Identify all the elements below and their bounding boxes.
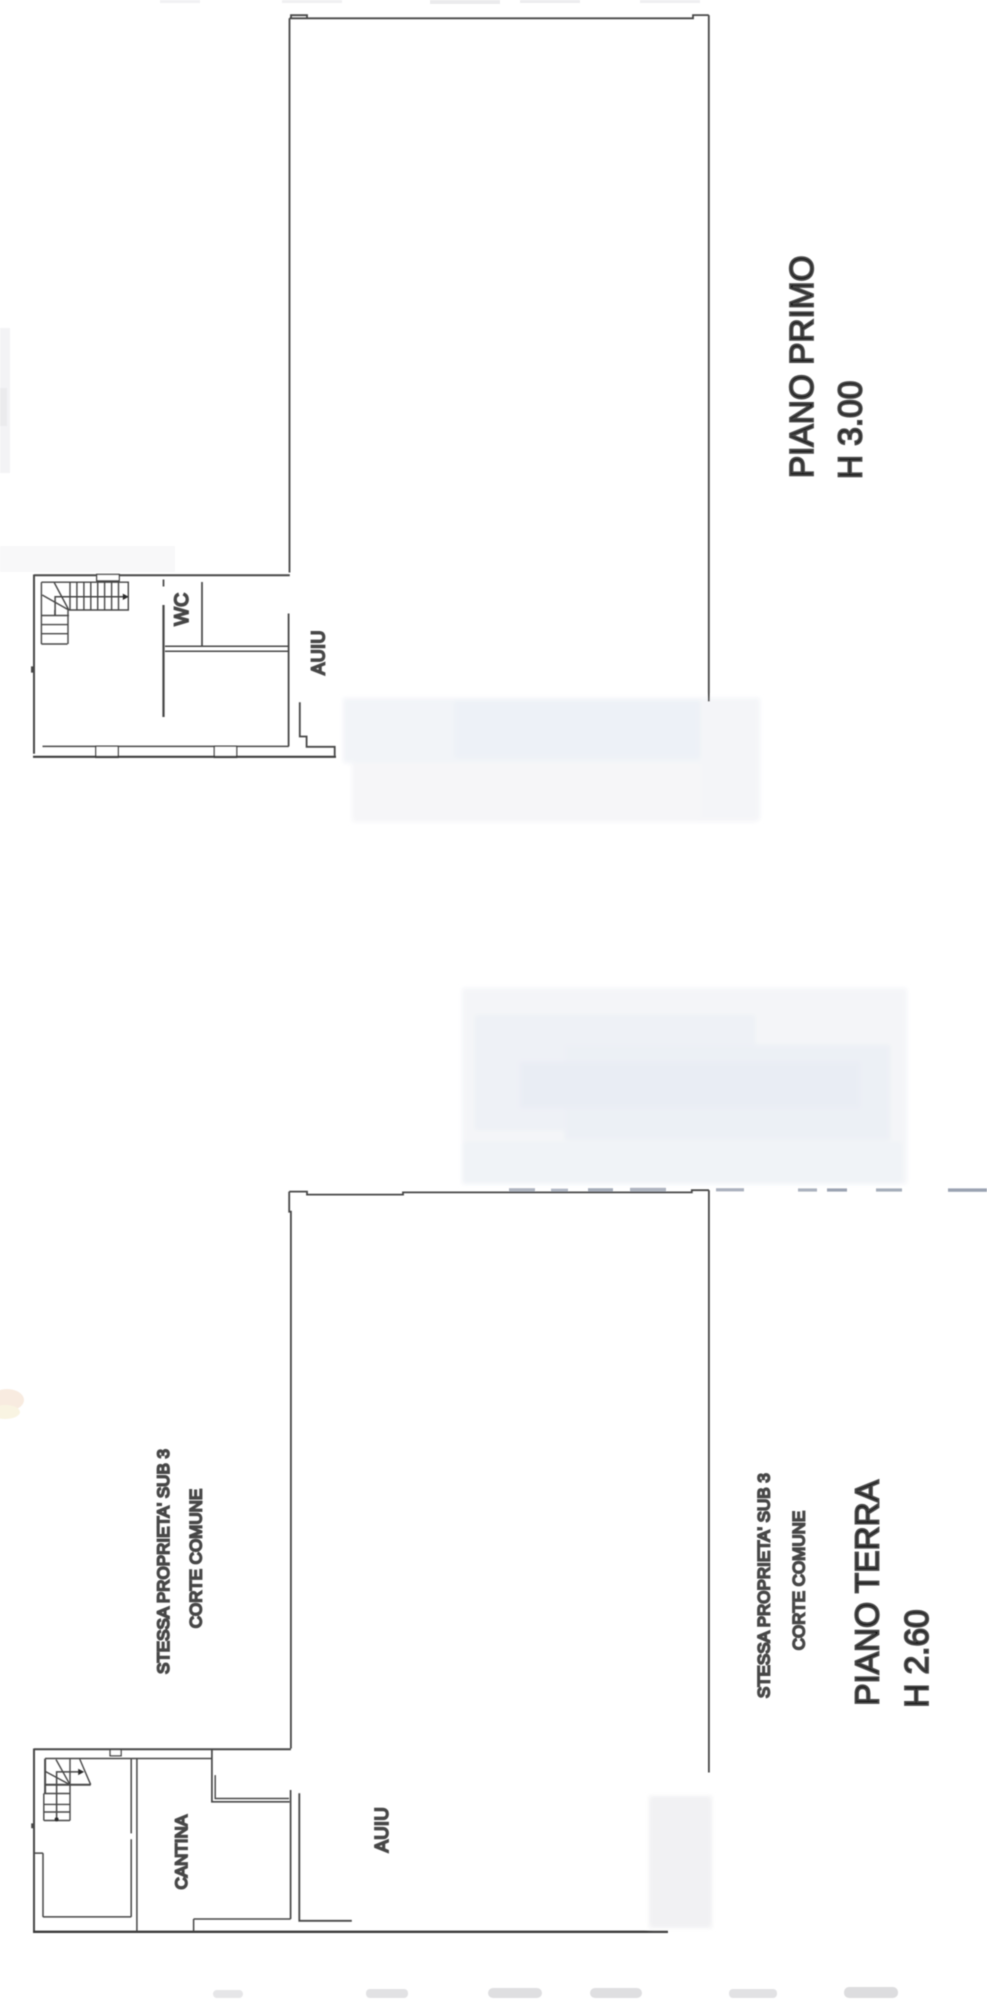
svg-text:CORTE COMUNE: CORTE COMUNE [790, 1511, 809, 1650]
svg-text:STESSA PROPRIETA' SUB 3: STESSA PROPRIETA' SUB 3 [754, 1473, 773, 1698]
svg-text:CORTE COMUNE: CORTE COMUNE [187, 1489, 206, 1628]
svg-text:CANTINA: CANTINA [172, 1814, 191, 1889]
svg-text:AUIU: AUIU [309, 630, 329, 675]
svg-text:H 3.00: H 3.00 [833, 381, 870, 479]
svg-text:STESSA PROPRIETA' SUB 3: STESSA PROPRIETA' SUB 3 [154, 1449, 173, 1674]
svg-text:WC: WC [171, 592, 193, 625]
svg-text:AUIU: AUIU [371, 1807, 392, 1852]
svg-text:PIANO TERRA: PIANO TERRA [850, 1479, 887, 1705]
svg-text:PIANO PRIMO: PIANO PRIMO [784, 255, 821, 478]
svg-text:H 2.60: H 2.60 [899, 1609, 936, 1707]
